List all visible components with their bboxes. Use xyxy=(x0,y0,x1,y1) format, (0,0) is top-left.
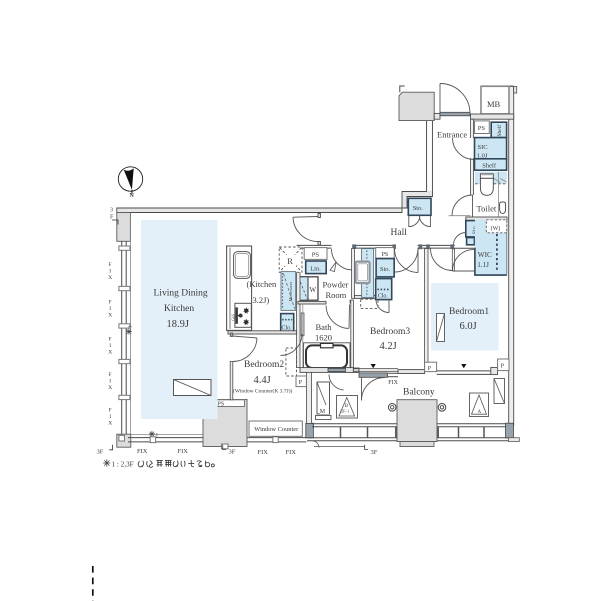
svg-text:Sto.: Sto. xyxy=(413,205,424,212)
svg-text:(K 3.7J)): (K 3.7J)) xyxy=(273,387,293,394)
svg-text:Window Counter: Window Counter xyxy=(254,426,299,433)
svg-text:(Window Counter: (Window Counter xyxy=(233,387,273,394)
svg-text:F: F xyxy=(109,372,112,378)
svg-text:A: A xyxy=(478,410,482,415)
svg-text:Kitchen: Kitchen xyxy=(164,304,194,314)
svg-text:(Kitchen: (Kitchen xyxy=(247,279,277,289)
svg-text:X: X xyxy=(108,421,112,427)
svg-text:WIC: WIC xyxy=(478,251,492,259)
svg-text:1620: 1620 xyxy=(315,333,332,343)
svg-text:Bedroom3: Bedroom3 xyxy=(370,327,410,337)
svg-text:FIX: FIX xyxy=(137,448,148,455)
svg-text:F: F xyxy=(109,337,112,343)
svg-text:Bedroom1: Bedroom1 xyxy=(449,307,489,317)
svg-text:PS: PS xyxy=(382,252,389,258)
svg-text:I: I xyxy=(109,269,111,275)
svg-text:I: I xyxy=(109,414,111,420)
svg-text:Living Dining: Living Dining xyxy=(154,288,208,298)
svg-text:(W): (W) xyxy=(491,225,501,232)
svg-text:Microwave: Microwave xyxy=(288,281,293,301)
svg-text:FIX: FIX xyxy=(388,380,398,386)
svg-text:Room: Room xyxy=(326,290,347,300)
svg-text:4.2J: 4.2J xyxy=(380,341,397,352)
svg-text:1.1J: 1.1J xyxy=(477,261,489,269)
svg-text:FIX: FIX xyxy=(286,449,297,456)
svg-text:Sto.: Sto. xyxy=(380,266,391,273)
svg-text:I: I xyxy=(109,379,111,385)
svg-text:Hall: Hall xyxy=(391,228,408,238)
svg-text:PS: PS xyxy=(218,402,225,408)
svg-text:3F: 3F xyxy=(229,449,236,456)
svg-text:3.2J): 3.2J) xyxy=(253,295,270,305)
svg-text:F: F xyxy=(109,408,112,414)
svg-text:3: 3 xyxy=(110,208,113,214)
svg-text:Powder: Powder xyxy=(323,280,349,290)
svg-text:X: X xyxy=(108,385,112,391)
svg-text:F: F xyxy=(109,262,112,268)
svg-text:X: X xyxy=(108,313,112,319)
svg-text:FIX: FIX xyxy=(178,448,189,455)
svg-text:X: X xyxy=(108,350,112,356)
svg-text:Clo.: Clo. xyxy=(378,294,389,300)
svg-text:MB: MB xyxy=(487,99,501,109)
svg-text:1 : 2,3F: 1 : 2,3F xyxy=(112,460,134,468)
svg-text:Toilet: Toilet xyxy=(477,204,497,214)
svg-text:I: I xyxy=(109,306,111,312)
svg-text:Balcony: Balcony xyxy=(403,387,435,397)
svg-text:1: 1 xyxy=(156,433,159,439)
svg-text:Bath: Bath xyxy=(316,322,333,332)
svg-text:3F: 3F xyxy=(97,448,104,455)
svg-text:X: X xyxy=(108,275,112,281)
svg-text:Grill: Grill xyxy=(231,314,235,321)
svg-text:Entrance: Entrance xyxy=(437,130,467,140)
svg-text:18.9J: 18.9J xyxy=(167,319,189,330)
svg-text:(2F--): (2F--) xyxy=(340,410,349,414)
svg-text:1: 1 xyxy=(128,325,134,328)
svg-text:PS: PS xyxy=(312,252,320,259)
svg-text:SIC: SIC xyxy=(478,144,488,151)
svg-text:PS: PS xyxy=(478,125,486,132)
svg-text:I: I xyxy=(109,343,111,349)
svg-text:M: M xyxy=(320,409,326,415)
svg-text:W: W xyxy=(309,286,316,294)
svg-text:F: F xyxy=(109,300,112,306)
svg-text:Shelf: Shelf xyxy=(482,163,497,170)
svg-text:FIX: FIX xyxy=(258,449,269,456)
svg-text:Bedroom2: Bedroom2 xyxy=(244,360,284,370)
svg-text:6.0J: 6.0J xyxy=(460,321,477,332)
svg-text:R: R xyxy=(287,256,293,266)
svg-text:4.4J: 4.4J xyxy=(254,375,271,386)
svg-text:3F: 3F xyxy=(371,449,378,456)
svg-text:Lin.: Lin. xyxy=(310,265,321,272)
svg-text:Shelf: Shelf xyxy=(496,125,503,137)
svg-text:N: N xyxy=(129,192,134,199)
